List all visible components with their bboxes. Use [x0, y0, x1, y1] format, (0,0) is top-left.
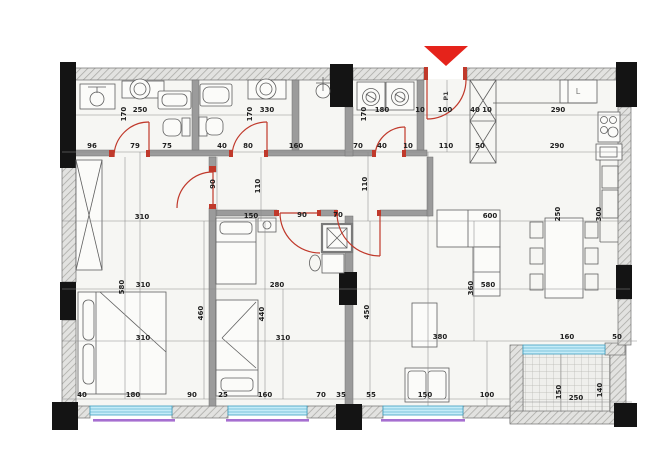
dimension-label: 35	[336, 391, 346, 399]
wardrobe-icon	[76, 160, 102, 270]
floor-plan-page: 1702501703301701801010040102909679754080…	[0, 0, 670, 450]
dimension-label: 90	[209, 179, 217, 189]
dimension-label: 580	[118, 280, 126, 295]
dimension-label: 250	[569, 394, 584, 402]
countertop-basin-icon	[248, 79, 286, 99]
bed-icon	[216, 218, 256, 284]
dimension-label: 75	[162, 142, 172, 150]
dimension-label: 250	[133, 106, 148, 114]
washbasin-icon	[80, 84, 115, 109]
dimension-label: 150	[555, 385, 563, 400]
dimension-label: 79	[130, 142, 140, 150]
dimension-label: 110	[361, 177, 369, 192]
dimension-label: 330	[260, 106, 275, 114]
nightstand-icon	[258, 218, 276, 232]
dimension-label: 310	[276, 334, 291, 342]
dimension-label: 460	[197, 306, 205, 321]
dimension-label: 180	[126, 391, 141, 399]
dimension-label: 50	[612, 333, 622, 341]
dimension-label: 290	[550, 142, 565, 150]
window	[90, 406, 175, 422]
dimension-label: 10	[403, 142, 413, 150]
dimension-label: 110	[439, 142, 454, 150]
bidet-icon	[158, 91, 191, 109]
balcony-tiles	[523, 352, 610, 412]
dimension-label: 450	[363, 305, 371, 320]
dimension-label: 360	[467, 281, 475, 296]
dimension-label: 380	[433, 333, 448, 341]
dimension-label: 170	[246, 107, 254, 122]
dimension-label: 90	[187, 391, 197, 399]
dimension-label: 290	[551, 106, 566, 114]
dimension-label: 90	[297, 211, 307, 219]
dimension-label: 310	[136, 281, 151, 289]
dimension-label: 100	[438, 106, 453, 114]
dimension-label: 70	[353, 142, 363, 150]
fixture-label: L	[576, 87, 581, 96]
washing-machine-icon	[386, 82, 414, 110]
toilet-icon	[199, 117, 223, 136]
dimension-label: 160	[258, 391, 273, 399]
dimension-label: 96	[87, 142, 97, 150]
balcony-window	[523, 345, 605, 354]
dimension-label: 40	[377, 142, 387, 150]
dimension-label: 140	[596, 383, 604, 398]
dimension-label: 160	[560, 333, 575, 341]
dimension-label: 180	[375, 106, 390, 114]
door-label: P1	[442, 91, 450, 101]
dimension-label: 310	[136, 334, 151, 342]
closet-icon	[322, 224, 352, 252]
dimension-label: 40	[77, 391, 87, 399]
dimension-label: 10	[415, 106, 425, 114]
dimension-label: 70	[316, 391, 326, 399]
dimension-label: 250	[554, 207, 562, 222]
dimension-label: 40	[217, 142, 227, 150]
floor-plan-canvas: 1702501703301701801010040102909679754080…	[0, 0, 670, 450]
dimension-label: 300	[595, 207, 603, 222]
dimension-label: 150	[244, 212, 259, 220]
dimension-label: 170	[360, 107, 368, 122]
dimension-label: 10	[482, 106, 492, 114]
dimension-label: 280	[270, 281, 285, 289]
bed-icon	[216, 300, 258, 396]
window	[226, 406, 309, 422]
bathtub-icon	[200, 84, 232, 106]
window	[381, 406, 465, 422]
bed-icon	[78, 292, 166, 394]
dimension-label: 150	[418, 391, 433, 399]
dimension-label: 55	[366, 391, 376, 399]
dimension-label: 600	[483, 212, 498, 220]
dimension-label: 70	[333, 211, 343, 219]
dimension-label: 110	[254, 179, 262, 194]
entrance-marker-icon	[424, 46, 468, 66]
dimension-label: 310	[135, 213, 150, 221]
dimension-label: 170	[120, 107, 128, 122]
dimension-label: 100	[480, 391, 495, 399]
dimension-label: 440	[258, 307, 266, 322]
dimension-label: 50	[475, 142, 485, 150]
dimension-label: 40	[470, 106, 480, 114]
dimension-label: 80	[243, 142, 253, 150]
dimension-label: 160	[289, 142, 304, 150]
stove-icon	[598, 112, 620, 142]
toilet-icon	[163, 118, 190, 136]
dimension-label: 25	[218, 391, 228, 399]
dimension-label: 580	[481, 281, 496, 289]
